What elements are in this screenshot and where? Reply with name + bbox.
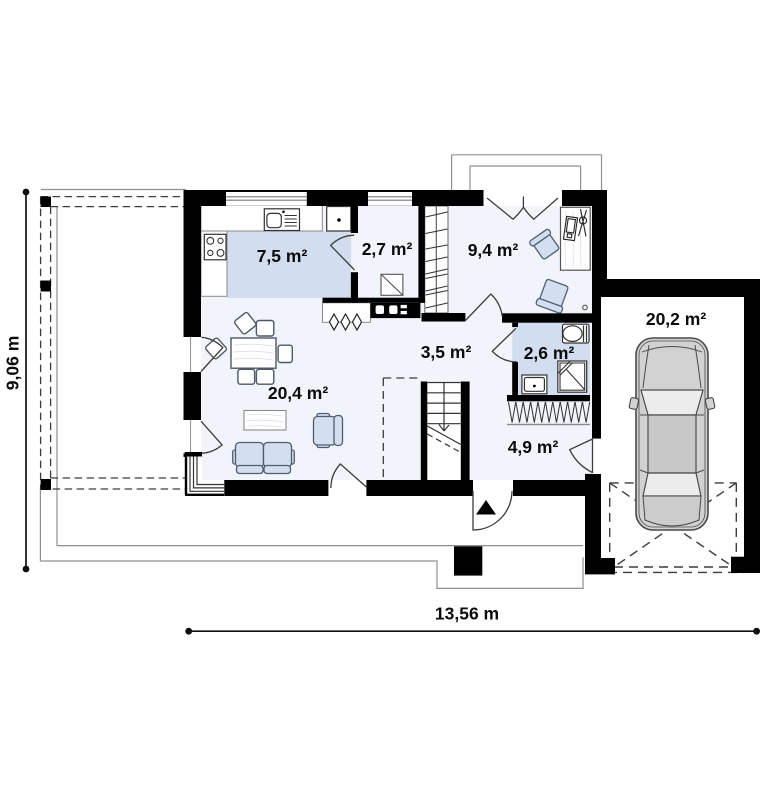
- svg-text:2,6 m²: 2,6 m²: [524, 343, 575, 363]
- svg-text:4,9 m²: 4,9 m²: [508, 437, 559, 457]
- svg-text:2,7 m²: 2,7 m²: [362, 239, 413, 259]
- svg-text:20,4 m²: 20,4 m²: [268, 383, 328, 403]
- svg-text:13,56 m: 13,56 m: [435, 604, 499, 624]
- svg-text:7,5 m²: 7,5 m²: [257, 246, 308, 266]
- svg-text:9,4 m²: 9,4 m²: [468, 240, 519, 260]
- svg-text:20,2 m²: 20,2 m²: [646, 309, 706, 329]
- svg-text:3,5 m²: 3,5 m²: [421, 342, 472, 362]
- svg-text:9,06 m: 9,06 m: [3, 336, 23, 390]
